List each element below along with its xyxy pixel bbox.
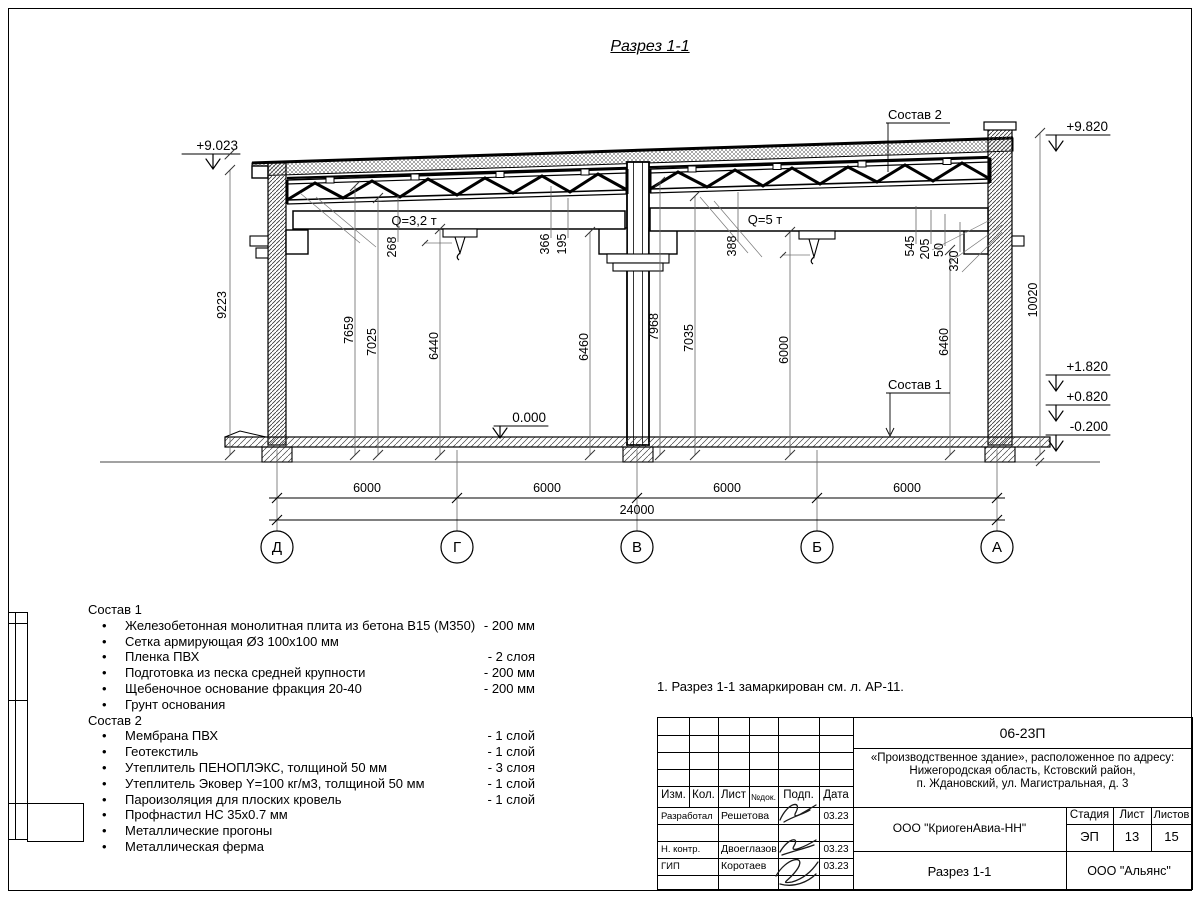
bullet-icon [88, 697, 125, 713]
dim-50: 50 [932, 243, 946, 257]
list-item: Утеплитель Эковер Y=100 кг/м3, толщиной … [88, 776, 535, 792]
dim-366: 366 [538, 234, 552, 255]
axis-label-a: А [992, 539, 1002, 556]
drawing-sheet: Разрез 1-1 [0, 0, 1200, 900]
bullet-icon [88, 665, 125, 681]
tb-header-podp: Подп. [778, 789, 819, 801]
dim-span-3: 6000 [713, 481, 741, 495]
bullet-icon [88, 649, 125, 665]
tb-role-gip: ГИП [661, 861, 717, 872]
dim-6460-left: 6460 [577, 333, 591, 361]
elevation-left-top: +9.023 [182, 138, 240, 169]
elevation-1820: +1.820 [1046, 359, 1110, 391]
crane-capacity-right-label: Q=5 т [748, 212, 783, 227]
svg-text:Состав 2: Состав 2 [888, 107, 942, 122]
tb-header-data: Дата [819, 789, 853, 801]
foundations [262, 447, 1015, 462]
truss-right-bay [650, 158, 990, 193]
hoist-trolley-left [443, 229, 477, 237]
tb-name-gip: Коротаев [721, 860, 777, 872]
tb-name-ncontrol: Двоеглазов [721, 843, 777, 855]
tb-stage-label: Стадия [1066, 809, 1113, 821]
hoist-trolley-right [799, 231, 835, 239]
bullet-icon [88, 792, 125, 808]
list-item: Железобетонная монолитная плита из бетон… [88, 618, 535, 634]
dim-9223: 9223 [215, 291, 229, 319]
svg-text:+1.820: +1.820 [1066, 359, 1108, 374]
tb-header-kol: Кол. [689, 789, 718, 801]
list-item: Мембрана ПВХ- 1 слой [88, 728, 535, 744]
truss-left-bay [287, 169, 627, 204]
svg-text:0.000: 0.000 [512, 410, 546, 425]
list-item: Сетка армирующая Ø3 100х100 мм [88, 634, 535, 650]
dim-6000-height: 6000 [777, 336, 791, 364]
tb-date-ncontrol: 03.23 [819, 844, 853, 855]
axis-label-d: Д [272, 539, 282, 556]
dim-7968: 7968 [647, 313, 661, 341]
tb-sheet-label: Лист [1113, 809, 1151, 821]
dim-span-1: 6000 [353, 481, 381, 495]
dim-320: 320 [947, 251, 961, 272]
bullet-icon [88, 823, 125, 839]
tb-role-ncontrol: Н. контр. [661, 844, 717, 855]
dim-span-2: 6000 [533, 481, 561, 495]
svg-text:-0.200: -0.200 [1070, 419, 1108, 434]
bullet-icon [88, 776, 125, 792]
bullet-icon [88, 634, 125, 650]
tb-doc-number: 06-23П [853, 725, 1192, 741]
dim-195: 195 [555, 234, 569, 255]
crane-beam-left: Q=3,2 т [293, 211, 625, 260]
bullet-icon [88, 760, 125, 776]
tb-name-developer: Решетова [721, 810, 777, 822]
list-item: Подготовка из песка средней крупности- 2… [88, 665, 535, 681]
sostav1-header: Состав 1 [88, 602, 535, 618]
list-item: Металлические прогоны [88, 823, 535, 839]
dim-7025: 7025 [365, 328, 379, 356]
list-item: Пароизоляция для плоских кровель- 1 слой [88, 792, 535, 808]
dim-10020: 10020 [1026, 283, 1040, 318]
crane-hook-right-icon [809, 239, 819, 257]
dim-205: 205 [918, 239, 932, 260]
section-drawing: Q=3,2 т Q=5 т [0, 0, 1200, 600]
tb-date-gip: 03.23 [819, 861, 853, 872]
elevation-floor-zero: 0.000 [493, 410, 548, 438]
list-item: Щебеночное основание фракция 20-40- 200 … [88, 681, 535, 697]
svg-text:+9.820: +9.820 [1066, 119, 1108, 134]
list-item: Грунт основания [88, 697, 535, 713]
tb-role-developer: Разработал [661, 811, 717, 822]
axis-label-v: В [632, 539, 642, 556]
dim-6460-right: 6460 [937, 328, 951, 356]
tb-header-ndok: №док. [749, 792, 778, 802]
elevation-0820: +0.820 [1046, 389, 1110, 421]
dim-span-4: 6000 [893, 481, 921, 495]
list-item: Профнастил НС 35х0.7 мм [88, 807, 535, 823]
dim-total-24000: 24000 [620, 503, 655, 517]
center-column [599, 162, 677, 445]
list-item: Утеплитель ПЕНОПЛЭКС, толщиной 50 мм- 3 … [88, 760, 535, 776]
tb-company: ООО "Альянс" [1066, 864, 1192, 878]
dim-388: 388 [725, 236, 739, 257]
tb-header-izm: Изм. [658, 789, 689, 801]
tb-stage-value: ЭП [1066, 829, 1113, 844]
svg-text:Состав 1: Состав 1 [888, 377, 942, 392]
bullet-icon [88, 728, 125, 744]
svg-text:+9.023: +9.023 [196, 138, 238, 153]
tb-sheet-value: 13 [1113, 829, 1151, 844]
title-block: Изм. Кол. Лист №док. Подп. Дата Разработ… [657, 717, 1193, 890]
tb-address-line2: Нижегородская область, Кстовский район, [853, 765, 1192, 777]
bullet-icon [88, 744, 125, 760]
signature-dvoeglazov [780, 840, 816, 855]
elevation-right-top: +9.820 [1046, 119, 1110, 151]
tb-address-line1: «Производственное здание», расположенное… [853, 752, 1192, 764]
bullet-icon [88, 618, 125, 634]
tb-sheets-label: Листов [1151, 809, 1192, 821]
tb-organization: ООО "КриогенАвиа-НН" [853, 821, 1066, 835]
tb-header-list: Лист [718, 789, 749, 801]
sostav2-header: Состав 2 [88, 713, 535, 729]
left-wall [250, 163, 308, 445]
tb-date-developer: 03.23 [819, 811, 853, 822]
svg-text:+0.820: +0.820 [1066, 389, 1108, 404]
list-item: Пленка ПВХ- 2 слоя [88, 649, 535, 665]
dim-545: 545 [903, 236, 917, 257]
crane-hook-left-icon [455, 237, 465, 253]
bullet-icon [88, 807, 125, 823]
dim-7035: 7035 [682, 324, 696, 352]
bullet-icon [88, 681, 125, 697]
dim-268: 268 [385, 237, 399, 258]
axis-label-g: Г [453, 539, 461, 556]
list-item: Геотекстиль- 1 слой [88, 744, 535, 760]
list-item: Металлическая ферма [88, 839, 535, 855]
dim-7659: 7659 [342, 316, 356, 344]
axis-bubbles: Д Г В Б А [261, 531, 1013, 563]
tb-address-line3: п. Ждановский, ул. Магистральная, д. 3 [853, 778, 1192, 790]
tb-sheets-value: 15 [1151, 829, 1192, 844]
drawing-note: 1. Разрез 1-1 замаркирован см. л. АР-11. [657, 679, 904, 694]
composition-lists: Состав 1 Железобетонная монолитная плита… [88, 602, 535, 855]
elevation-minus-0200: -0.200 [1046, 419, 1110, 451]
bullet-icon [88, 839, 125, 855]
sostav1-callout: Состав 1 [886, 377, 950, 436]
axis-label-b: Б [812, 539, 822, 556]
dim-6440: 6440 [427, 332, 441, 360]
tb-section-name: Разрез 1-1 [853, 864, 1066, 879]
signature-korotaev [776, 860, 818, 886]
